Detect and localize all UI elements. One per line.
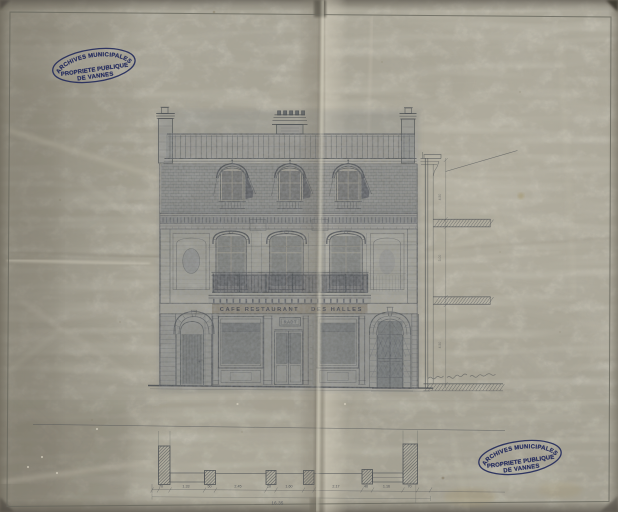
svg-text:4.50: 4.50 [438,342,442,349]
svg-text:20: 20 [267,484,271,488]
svg-text:70: 70 [159,484,163,488]
svg-text:70: 70 [407,484,411,488]
svg-text:40: 40 [364,484,368,488]
svg-text:1.60: 1.60 [285,484,292,488]
svg-text:16.35: 16.35 [272,500,284,505]
svg-text:2.17: 2.17 [332,484,339,488]
svg-text:50: 50 [207,484,211,488]
svg-text:1.16: 1.16 [383,484,390,488]
svg-text:4.50: 4.50 [438,194,442,201]
svg-text:3.00: 3.00 [438,255,442,262]
svg-text:2.45: 2.45 [234,484,241,488]
svg-text:1.33: 1.33 [182,484,189,488]
